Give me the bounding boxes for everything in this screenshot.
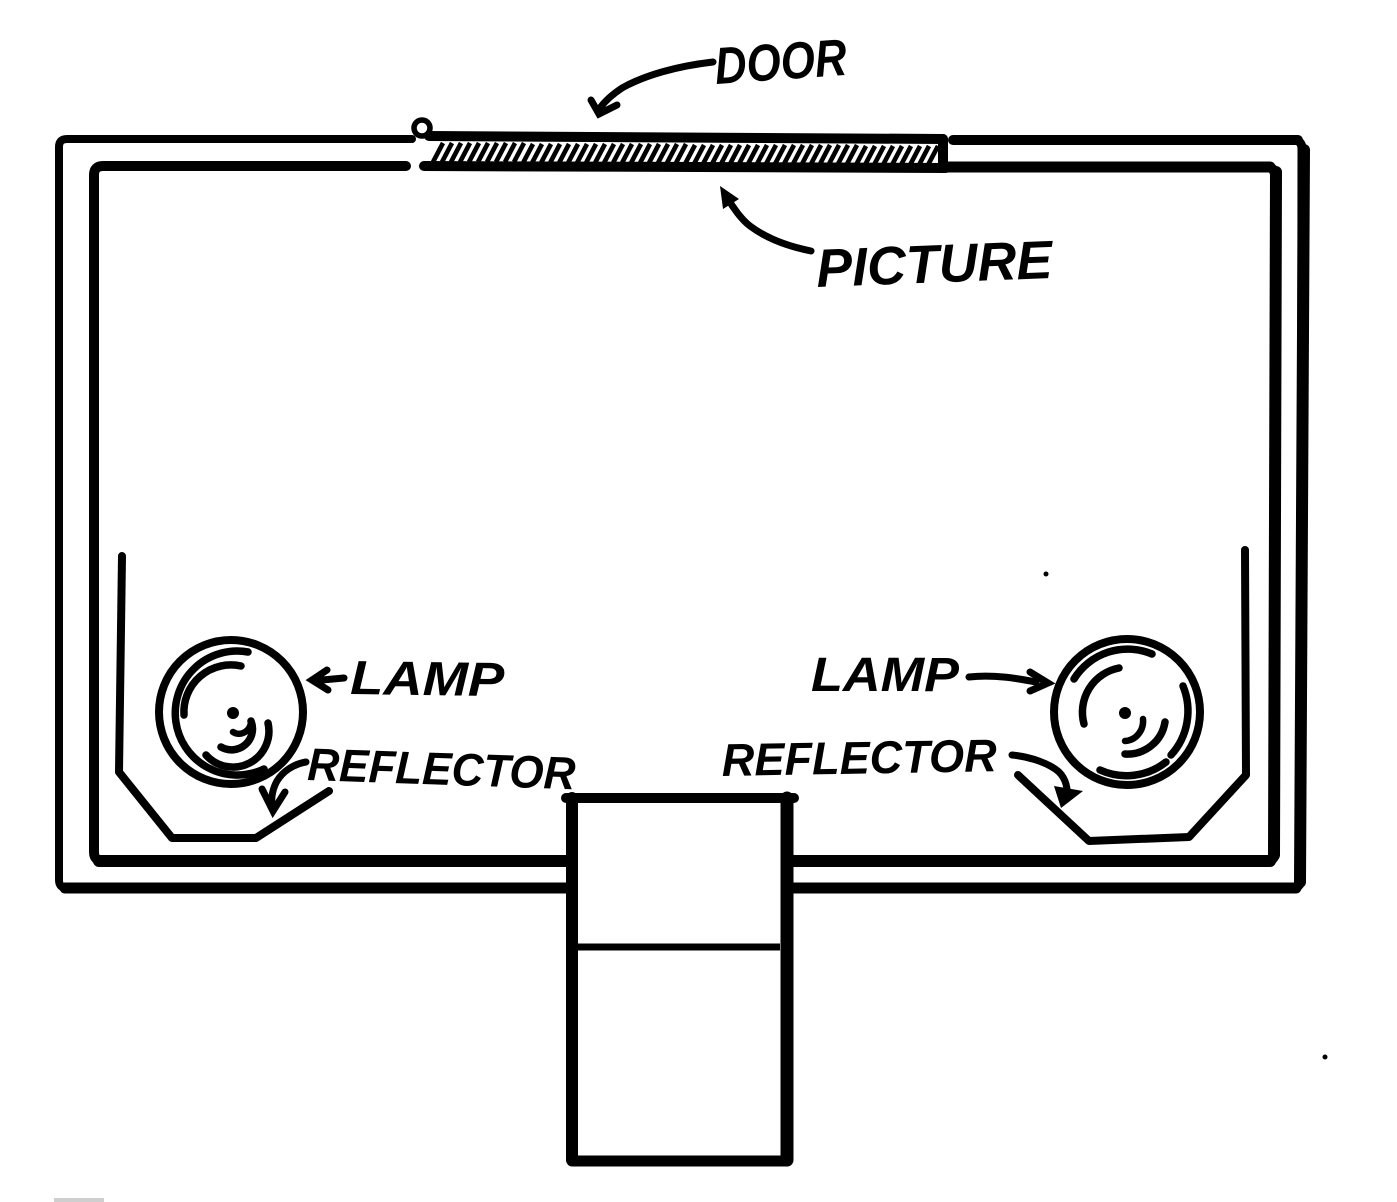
svg-text:PICTURE: PICTURE: [815, 230, 1055, 299]
svg-text:LAMP: LAMP: [811, 649, 960, 702]
svg-text:DOOR: DOOR: [713, 29, 849, 96]
svg-text:REFLECTOR: REFLECTOR: [721, 729, 997, 786]
svg-text:REFLECTOR: REFLECTOR: [307, 738, 577, 799]
svg-text:LAMP: LAMP: [350, 652, 506, 707]
